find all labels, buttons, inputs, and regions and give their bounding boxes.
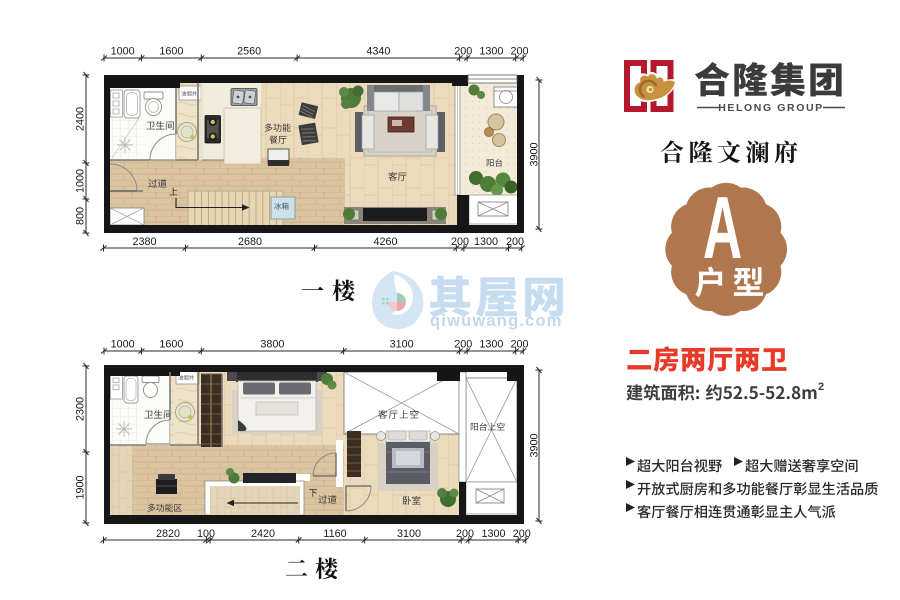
svg-text:1300: 1300: [479, 339, 503, 351]
svg-text:2420: 2420: [251, 528, 275, 540]
svg-text:HELONG GROUP: HELONG GROUP: [718, 102, 824, 114]
svg-text:200: 200: [510, 339, 528, 351]
svg-text:1600: 1600: [159, 339, 183, 351]
svg-text:1300: 1300: [481, 528, 505, 540]
svg-text:100: 100: [197, 528, 215, 540]
svg-text:200: 200: [454, 46, 472, 58]
svg-text:3100: 3100: [397, 528, 421, 540]
svg-text:1000: 1000: [111, 46, 135, 58]
svg-text:1300: 1300: [479, 46, 503, 58]
svg-text:1000: 1000: [75, 169, 87, 193]
svg-text:1900: 1900: [75, 475, 87, 499]
svg-text:2560: 2560: [237, 46, 261, 58]
svg-text:1160: 1160: [323, 528, 346, 540]
svg-text:200: 200: [456, 528, 474, 540]
svg-text:4340: 4340: [366, 46, 390, 58]
svg-text:2: 2: [818, 381, 824, 393]
svg-text:4260: 4260: [373, 236, 397, 248]
svg-text:2300: 2300: [75, 397, 87, 421]
svg-text:A: A: [703, 179, 742, 278]
svg-text:200: 200: [454, 339, 472, 351]
svg-text:3100: 3100: [390, 339, 414, 351]
svg-text:2680: 2680: [238, 236, 262, 248]
svg-text:1300: 1300: [474, 236, 498, 248]
svg-text:2400: 2400: [75, 107, 87, 131]
svg-text:800: 800: [75, 207, 87, 225]
svg-text:200: 200: [513, 528, 531, 540]
svg-text:1600: 1600: [159, 46, 183, 58]
svg-text:2380: 2380: [132, 236, 156, 248]
svg-text:1000: 1000: [111, 339, 135, 351]
svg-text:200: 200: [506, 236, 524, 248]
svg-text:3800: 3800: [260, 339, 284, 351]
svg-text:qiwuwang.com: qiwuwang.com: [430, 312, 563, 330]
svg-text:3900: 3900: [529, 142, 541, 166]
svg-text:200: 200: [451, 236, 469, 248]
svg-text:2820: 2820: [156, 528, 180, 540]
svg-text:200: 200: [510, 46, 528, 58]
svg-text:3900: 3900: [529, 433, 541, 457]
